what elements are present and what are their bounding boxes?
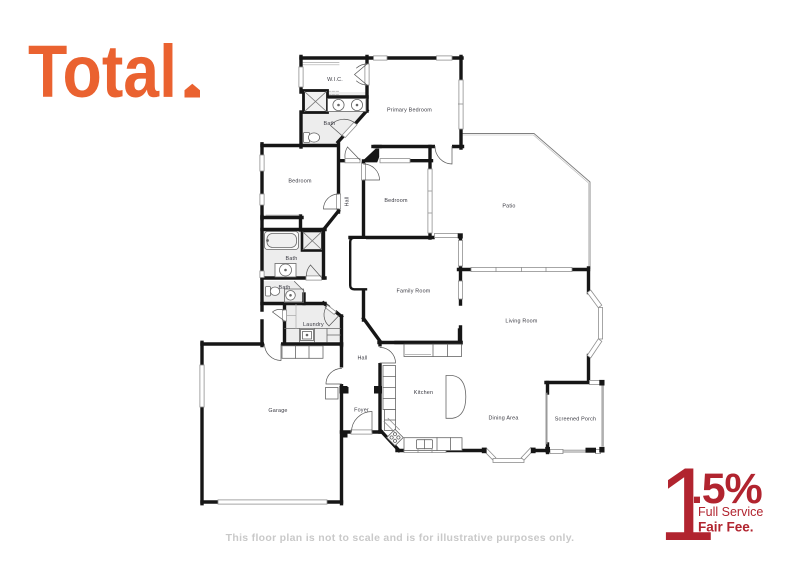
svg-text:W.I.C.: W.I.C. <box>327 77 343 83</box>
svg-text:Hall: Hall <box>357 356 367 362</box>
svg-text:Fair Fee.: Fair Fee. <box>698 520 754 535</box>
svg-text:Hall: Hall <box>345 196 351 206</box>
svg-text:Full Service: Full Service <box>698 505 763 519</box>
svg-text:Bath: Bath <box>286 256 298 262</box>
svg-text:Living Room: Living Room <box>505 319 537 325</box>
svg-text:Bedroom: Bedroom <box>288 179 312 185</box>
svg-text:Patio: Patio <box>502 204 515 210</box>
svg-text:Primary Bedroom: Primary Bedroom <box>387 108 432 114</box>
svg-text:Kitchen: Kitchen <box>414 390 433 396</box>
svg-text:Bath: Bath <box>279 285 291 291</box>
svg-text:Screened Porch: Screened Porch <box>555 417 596 423</box>
svg-text:Garage: Garage <box>268 408 287 414</box>
svg-text:Bedroom: Bedroom <box>384 198 408 204</box>
svg-text:Laundry: Laundry <box>303 322 324 328</box>
svg-text:Family Room: Family Room <box>397 289 431 295</box>
svg-text:Foyer: Foyer <box>354 408 369 414</box>
svg-text:Bath: Bath <box>324 121 336 127</box>
svg-text:Total: Total <box>28 30 177 113</box>
svg-text:This floor plan is not to scal: This floor plan is not to scale and is f… <box>226 532 575 544</box>
svg-text:Dining Area: Dining Area <box>488 416 518 422</box>
